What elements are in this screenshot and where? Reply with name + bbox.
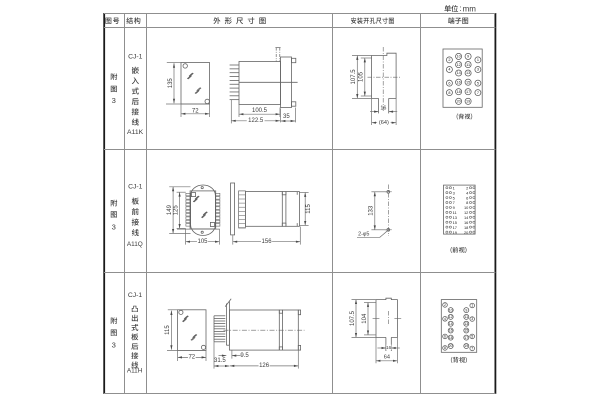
svg-text:133: 133 — [369, 205, 375, 216]
svg-text:18: 18 — [449, 336, 453, 340]
svg-text:7: 7 — [471, 347, 473, 351]
svg-text:A11K: A11K — [127, 129, 144, 136]
svg-text:104: 104 — [362, 313, 368, 324]
svg-text:17: 17 — [464, 336, 468, 340]
svg-text:CJ-1: CJ-1 — [128, 184, 143, 191]
svg-text:4: 4 — [448, 68, 450, 72]
svg-text:1: 1 — [477, 58, 479, 62]
svg-text:mm: mm — [463, 4, 477, 13]
svg-text:9.5: 9.5 — [240, 353, 249, 359]
svg-text::: : — [459, 4, 461, 13]
svg-text:11: 11 — [464, 315, 468, 319]
svg-text:9: 9 — [465, 308, 467, 312]
svg-text:A11H: A11H — [127, 368, 143, 375]
svg-text:3: 3 — [477, 68, 479, 72]
svg-text:16: 16 — [380, 106, 386, 112]
svg-text:3: 3 — [471, 317, 473, 321]
svg-text:4: 4 — [444, 317, 446, 321]
svg-text:5: 5 — [471, 335, 473, 339]
svg-text:3: 3 — [112, 341, 116, 350]
svg-text:7: 7 — [477, 91, 479, 95]
svg-text:16: 16 — [449, 329, 453, 333]
svg-text:100.5: 100.5 — [252, 108, 268, 114]
svg-text:15: 15 — [466, 80, 470, 84]
svg-text:9: 9 — [467, 55, 469, 59]
svg-text:(64): (64) — [379, 120, 389, 126]
svg-text:12: 12 — [449, 315, 453, 319]
svg-text:): ) — [465, 246, 467, 253]
svg-text:1: 1 — [471, 304, 473, 308]
svg-text:18: 18 — [456, 90, 460, 94]
svg-text:CJ-1: CJ-1 — [128, 53, 143, 60]
svg-text:): ) — [465, 356, 467, 363]
svg-text:8: 8 — [444, 346, 446, 350]
svg-text:A11Q: A11Q — [127, 241, 143, 248]
svg-text:10: 10 — [456, 55, 460, 59]
svg-text:2-φ5: 2-φ5 — [358, 232, 369, 238]
svg-text:115: 115 — [306, 204, 312, 214]
svg-text:13: 13 — [464, 322, 468, 326]
svg-text:72: 72 — [192, 108, 199, 114]
svg-text:35: 35 — [283, 114, 290, 120]
svg-text:3: 3 — [112, 96, 116, 105]
svg-text:19: 19 — [464, 344, 468, 348]
svg-text:135: 135 — [168, 78, 174, 89]
svg-text:149: 149 — [167, 204, 173, 215]
svg-text:19: 19 — [466, 100, 470, 104]
svg-text:105: 105 — [359, 71, 365, 82]
svg-text:6: 6 — [444, 335, 446, 339]
svg-text:72: 72 — [188, 355, 195, 361]
svg-text:2: 2 — [444, 303, 446, 307]
svg-text:16: 16 — [386, 345, 392, 350]
svg-text:107.5: 107.5 — [350, 310, 356, 326]
svg-text:): ) — [470, 113, 472, 120]
svg-text:105: 105 — [197, 239, 208, 245]
svg-text:156: 156 — [262, 239, 273, 245]
svg-text:19: 19 — [453, 230, 457, 235]
svg-text:11: 11 — [466, 63, 470, 67]
svg-text:CJ-1: CJ-1 — [128, 292, 143, 299]
svg-text:17: 17 — [466, 90, 470, 94]
svg-text:107.5: 107.5 — [351, 69, 357, 85]
svg-text:8: 8 — [448, 91, 450, 95]
svg-text:16: 16 — [456, 80, 460, 84]
svg-text:125: 125 — [173, 205, 179, 216]
svg-text:5: 5 — [477, 81, 479, 85]
svg-text:2: 2 — [448, 58, 450, 62]
svg-text:14: 14 — [456, 71, 460, 75]
svg-text:15: 15 — [464, 329, 468, 333]
svg-text:64: 64 — [384, 355, 390, 361]
svg-text:6: 6 — [448, 81, 450, 85]
svg-text:115: 115 — [165, 325, 171, 335]
svg-text:3: 3 — [112, 222, 116, 231]
svg-text:20: 20 — [456, 100, 460, 104]
svg-text:126: 126 — [259, 363, 270, 369]
svg-text:12: 12 — [456, 63, 460, 67]
svg-text:122.5: 122.5 — [248, 118, 264, 124]
svg-text:14: 14 — [449, 322, 453, 326]
svg-text:10: 10 — [449, 308, 453, 312]
svg-text:20: 20 — [449, 344, 453, 348]
svg-text:31.5: 31.5 — [214, 358, 226, 364]
svg-text:13: 13 — [466, 71, 470, 75]
